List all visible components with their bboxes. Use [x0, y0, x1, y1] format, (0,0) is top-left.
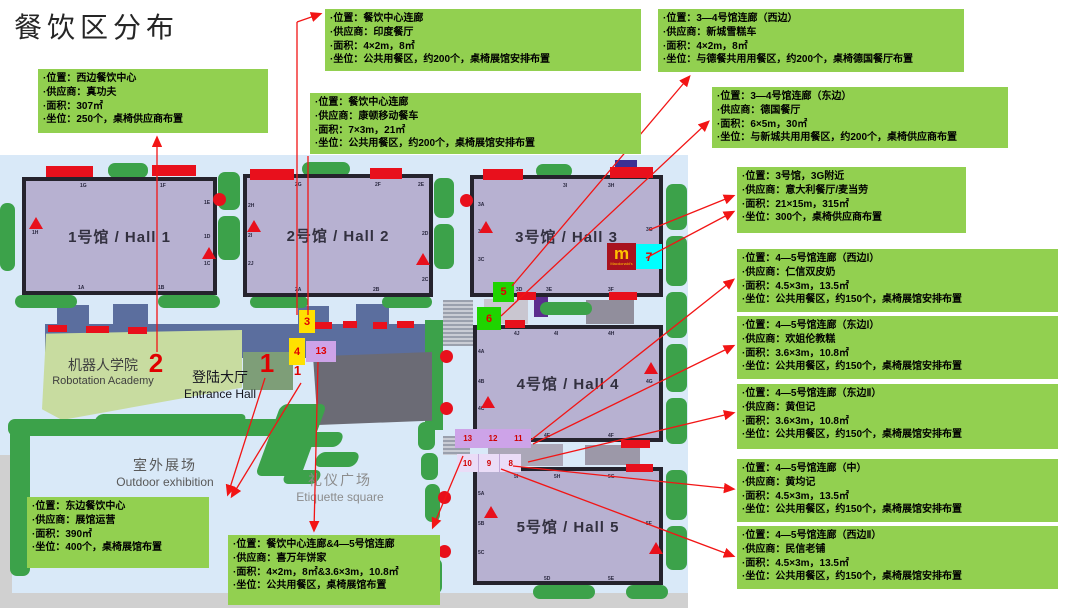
food-marker-strip: 1098: [457, 454, 521, 472]
hall-5-label: 5号馆 / Hall 5: [517, 516, 620, 537]
info-box-dining-and-hall45-corridor: ·位置：餐饮中心连廊&4—5号馆连廊·供应商：喜万年饼家·面积：4×2m，8㎡&…: [228, 535, 440, 605]
gate-label: 5A: [478, 491, 490, 498]
gate-label: 1G: [80, 183, 92, 190]
info-line: ·面积：4×2m，8㎡: [330, 40, 635, 54]
info-box-hall45-corridor-west1: ·位置：4—5号馆连廊（西边Ⅰ）·供应商：仁信双皮奶·面积：4.5×3m，13.…: [737, 249, 1058, 312]
gate-label: 5C: [478, 550, 490, 557]
tree: [540, 302, 592, 315]
info-line: ·位置：3—4号馆连廊（东边）: [717, 90, 1002, 104]
info-box-hall45-corridor-east2: ·位置：4—5号馆连廊（东边Ⅱ）·供应商：黄但记·面积：3.6×3m，10.8㎡…: [737, 384, 1058, 449]
tree: [666, 236, 687, 286]
hall-1-label: 1号馆 / Hall 1: [68, 226, 171, 247]
entrance-bar: [370, 168, 402, 179]
map-shape: [688, 155, 737, 608]
entrance-hall-label-en: Entrance Hall: [160, 387, 280, 401]
info-line: ·位置：餐饮中心连廊&4—5号馆连廊: [233, 538, 434, 552]
tree: [15, 295, 77, 308]
tree: [93, 414, 247, 426]
tree: [313, 452, 360, 467]
info-line: ·位置：东边餐饮中心: [32, 500, 203, 514]
info-box-hall3-3g: ·位置：3号馆，3G附近·供应商：意大利餐厅/麦当劳·面积：21×15m，315…: [737, 167, 966, 233]
map-shape: [585, 445, 640, 465]
info-line: ·坐位：公共用餐区，约150个，桌椅展馆安排布置: [742, 503, 1052, 517]
info-box-dining-corridor-kangdun: ·位置：餐饮中心连廊·供应商：康顿移动餐车·面积：7×3m，21㎡·坐位：公共用…: [310, 93, 641, 154]
gate-label: 5F: [646, 521, 658, 528]
info-line: ·坐位：公共用餐区，约150个，桌椅展馆安排布置: [742, 293, 1052, 307]
gate-label: 2F: [375, 182, 387, 189]
red-dot: [438, 491, 451, 504]
gate-label: 3C: [478, 257, 490, 264]
hall-2: 2号馆 / Hall 2: [243, 174, 433, 297]
info-line: ·供应商：新城雪糕车: [663, 26, 958, 40]
info-line: ·供应商：意大利餐厅/麦当劳: [742, 184, 960, 198]
entrance-bar: [48, 325, 67, 332]
info-box-hall34-corridor-east: ·位置：3—4号馆连廊（东边）·供应商：德国餐厅·面积：6×5m，30㎡·坐位：…: [712, 87, 1008, 148]
info-line: ·面积：307㎡: [43, 100, 262, 114]
food-marker-11: 11: [506, 429, 531, 448]
info-line: ·面积：6×5m，30㎡: [717, 118, 1002, 132]
info-box-hall45-corridor-mid: ·位置：4—5号馆连廊（中）·供应商：黄均记·面积：4.5×3m，13.5㎡·坐…: [737, 459, 1058, 522]
fire-point-icon: [479, 221, 493, 233]
food-marker-9: 9: [478, 454, 500, 472]
gate-label: 2A: [295, 287, 307, 294]
hall-5: 5号馆 / Hall 5: [473, 467, 663, 585]
info-line: ·供应商：民信老铺: [742, 543, 1052, 557]
gate-label: 5E: [608, 576, 620, 583]
gate-label: 4I: [554, 331, 566, 338]
info-line: ·面积：21×15m，315㎡: [742, 198, 960, 212]
entrance-bar: [250, 169, 294, 180]
tree: [382, 296, 432, 308]
info-box-hall45-corridor-west2: ·位置：4—5号馆连廊（西边Ⅱ）·供应商：民信老铺·面积：4.5×3m，13.5…: [737, 526, 1058, 589]
info-line: ·坐位：与新城共用用餐区，约200个，桌椅供应商布置: [717, 131, 1002, 145]
gate-label: 3G: [646, 227, 658, 234]
map-shape: [113, 304, 148, 327]
info-box-hall45-corridor-east1: ·位置：4—5号馆连廊（东边Ⅰ）·供应商：欢姐伦教糕·面积：3.6×3m，10.…: [737, 316, 1058, 379]
info-line: ·位置：西边餐饮中心: [43, 72, 262, 86]
food-marker-3: 3: [299, 310, 315, 333]
page-title: 餐饮区分布: [14, 6, 179, 46]
info-line: ·位置：4—5号馆连廊（东边Ⅱ）: [742, 387, 1052, 401]
info-line: ·面积：4.5×3m，13.5㎡: [742, 280, 1052, 294]
tree: [533, 585, 595, 599]
red-dot: [440, 350, 453, 363]
fire-point-icon: [29, 217, 43, 229]
info-line: ·坐位：公共用餐区，约200个，桌椅展馆安排布置: [330, 53, 635, 67]
fire-point-icon: [484, 506, 498, 518]
entrance-bar: [517, 292, 536, 300]
tree: [666, 526, 687, 570]
info-line: ·坐位：公共用餐区，约200个，桌椅展馆安排布置: [315, 137, 635, 151]
info-line: ·位置：4—5号馆连廊（西边Ⅱ）: [742, 529, 1052, 543]
gate-label: 5H: [554, 474, 566, 481]
fire-point-icon: [247, 220, 261, 232]
etiquette-square-label-en: Etiquette square: [255, 490, 425, 504]
info-line: ·面积：3.6×3m，10.8㎡: [742, 347, 1052, 361]
entrance-bar: [610, 167, 653, 178]
info-line: ·供应商：展馆运营: [32, 514, 203, 528]
gate-label: 4J: [514, 331, 526, 338]
entrance-bar: [128, 327, 147, 334]
entrance-hall-label: 登陆大厅 Entrance Hall: [160, 367, 280, 401]
entrance-bar: [505, 320, 525, 328]
gate-label: 3H: [608, 183, 620, 190]
info-line: ·供应商：仁信双皮奶: [742, 266, 1052, 280]
info-line: ·面积：7×3m，21㎡: [315, 124, 635, 138]
mcdonalds-logo: mMacdonald's: [607, 243, 636, 270]
ramp: [443, 300, 473, 346]
tree: [666, 470, 687, 520]
entrance-bar: [483, 169, 523, 180]
info-line: ·位置：餐饮中心连廊: [330, 12, 635, 26]
info-line: ·供应商：真功夫: [43, 86, 262, 100]
gate-label: 5G: [608, 474, 620, 481]
gate-label: 3E: [546, 287, 558, 294]
info-box-dining-corridor-india: ·位置：餐饮中心连廊·供应商：印度餐厅·面积：4×2m，8㎡·坐位：公共用餐区，…: [325, 9, 641, 71]
hall-2-label: 2号馆 / Hall 2: [287, 225, 390, 246]
info-line: ·面积：4.5×3m，13.5㎡: [742, 557, 1052, 571]
gate-label: 2E: [418, 182, 430, 189]
info-line: ·供应商：喜万年饼家: [233, 552, 434, 566]
info-box-east-dining-center: ·位置：东边餐饮中心·供应商：展馆运营·面积：390㎡·坐位：400个，桌椅展馆…: [27, 497, 209, 568]
info-line: ·位置：4—5号馆连廊（东边Ⅰ）: [742, 319, 1052, 333]
gate-label: 5D: [544, 576, 556, 583]
gate-label: 4G: [646, 379, 658, 386]
food-marker-strip: 131211: [455, 429, 531, 448]
info-line: ·供应商：德国餐厅: [717, 104, 1002, 118]
red-dot: [460, 194, 473, 207]
red-dot: [213, 193, 226, 206]
map-shape: [586, 300, 634, 324]
tree: [158, 295, 220, 308]
info-line: ·坐位：400个，桌椅展馆布置: [32, 541, 203, 555]
entrance-bar: [621, 440, 650, 448]
entrance-bar: [46, 166, 93, 177]
food-marker-6: 6: [477, 307, 501, 330]
info-line: ·坐位：300个，桌椅供应商布置: [742, 211, 960, 225]
info-line: ·供应商：印度餐厅: [330, 26, 635, 40]
entrance-bar: [397, 321, 414, 328]
gate-label: 2I: [248, 233, 260, 240]
gate-label: 2G: [295, 182, 307, 189]
gate-label: 1C: [204, 261, 216, 268]
tree: [108, 163, 148, 178]
info-line: ·面积：4.5×3m，13.5㎡: [742, 490, 1052, 504]
tree: [250, 296, 308, 308]
tree: [666, 398, 687, 444]
tree: [434, 178, 454, 218]
entrance-bar: [152, 165, 196, 176]
tree: [434, 224, 454, 269]
info-line: ·位置：3—4号馆连廊（西边）: [663, 12, 958, 26]
hall-4-label: 4号馆 / Hall 4: [517, 373, 620, 394]
gate-label: 1D: [204, 234, 216, 241]
hall-3-label: 3号馆 / Hall 3: [515, 226, 618, 247]
gate-label: 1A: [78, 285, 90, 292]
info-line: ·坐位：公共用餐区，约150个，桌椅展馆安排布置: [742, 428, 1052, 442]
info-line: ·位置：餐饮中心连廊: [315, 96, 635, 110]
entrance-bar: [343, 321, 357, 328]
fire-point-icon: [481, 396, 495, 408]
gate-label: 2J: [248, 261, 260, 268]
info-line: ·位置：4—5号馆连廊（中）: [742, 462, 1052, 476]
mcdonalds-wordmark: Macdonald's: [610, 262, 632, 266]
etiquette-square-label-zh: 礼仪广场: [255, 470, 425, 490]
info-line: ·位置：4—5号馆连廊（西边Ⅰ）: [742, 252, 1052, 266]
tree: [626, 585, 668, 599]
hall-4: 4号馆 / Hall 4: [473, 325, 663, 442]
info-line: ·坐位：公共用餐区，约150个，桌椅展馆安排布置: [742, 360, 1052, 374]
entrance-hall-area: [313, 352, 432, 425]
info-line: ·供应商：黄但记: [742, 401, 1052, 415]
gate-label: 1B: [158, 285, 170, 292]
food-marker-13: 13: [455, 429, 480, 448]
outdoor-exhibition-label-en: Outdoor exhibition: [75, 475, 255, 489]
slide: 餐饮区分布 机器人学院 Robotation Academy 登陆大厅 Entr…: [0, 0, 1080, 608]
tree: [666, 344, 687, 392]
food-marker-4: 4: [289, 338, 305, 365]
entrance-bar: [626, 464, 653, 472]
info-line: ·面积：4×2m，8㎡: [663, 40, 958, 54]
etiquette-square-label: 礼仪广场 Etiquette square: [255, 470, 425, 504]
gate-label: 2B: [373, 287, 385, 294]
entrance-bar: [609, 292, 637, 300]
gate-label: 1F: [160, 183, 172, 190]
gate-label: 4H: [608, 331, 620, 338]
food-marker-10: 10: [457, 454, 478, 472]
fire-point-icon: [649, 542, 663, 554]
info-line: ·面积：390㎡: [32, 528, 203, 542]
info-line: ·位置：3号馆，3G附近: [742, 170, 960, 184]
entrance-bar: [373, 322, 387, 329]
tree: [0, 203, 15, 271]
entrance-hall-label-zh: 登陆大厅: [160, 367, 280, 387]
mcdonalds-arches-icon: m: [614, 245, 629, 262]
food-marker-8: 8: [499, 454, 521, 472]
food-marker-5: 5: [493, 282, 514, 302]
info-box-hall34-corridor-west: ·位置：3—4号馆连廊（西边）·供应商：新城雪糕车·面积：4×2m，8㎡·坐位：…: [658, 9, 964, 72]
gate-label: 4A: [478, 349, 490, 356]
gate-label: 3A: [478, 202, 490, 209]
gate-label: 2H: [248, 203, 260, 210]
entrance-bar: [315, 322, 332, 329]
tree: [666, 184, 687, 230]
fire-point-icon: [644, 362, 658, 374]
info-line: ·坐位：公共用餐区，约150个，桌椅展馆安排布置: [742, 570, 1052, 584]
gate-label: 4B: [478, 379, 490, 386]
info-line: ·坐位：250个，桌椅供应商布置: [43, 113, 262, 127]
tree: [418, 422, 435, 450]
outdoor-exhibition-label-zh: 室外展场: [75, 455, 255, 475]
food-marker-13: 13: [306, 341, 336, 362]
tree: [218, 216, 240, 260]
food-marker-7: 7: [636, 244, 662, 269]
info-box-west-dining-center: ·位置：西边餐饮中心·供应商：真功夫·面积：307㎡·坐位：250个，桌椅供应商…: [38, 69, 268, 133]
food-marker-1: 1: [291, 362, 304, 378]
fire-point-icon: [416, 253, 430, 265]
gate-label: 2C: [422, 277, 434, 284]
outdoor-exhibition-label: 室外展场 Outdoor exhibition: [75, 455, 255, 489]
red-dot: [440, 402, 453, 415]
info-line: ·供应商：黄均记: [742, 476, 1052, 490]
food-marker-12: 12: [480, 429, 505, 448]
gate-label: 4E: [544, 433, 556, 440]
entrance-bar: [86, 326, 109, 333]
tree: [666, 292, 687, 338]
fire-point-icon: [202, 247, 216, 259]
hall-3: 3号馆 / Hall 3: [470, 175, 663, 297]
gate-label: 4F: [608, 433, 620, 440]
info-line: ·面积：3.6×3m，10.8㎡: [742, 415, 1052, 429]
tree: [425, 484, 440, 522]
info-line: ·坐位：与德餐共用用餐区，约200个，桌椅德国餐厅布置: [663, 53, 958, 67]
gate-label: 2D: [422, 231, 434, 238]
gate-label: 3I: [563, 183, 575, 190]
info-line: ·供应商：康顿移动餐车: [315, 110, 635, 124]
gate-label: 5I: [514, 474, 526, 481]
info-line: ·坐位：公共用餐区，桌椅展馆布置: [233, 579, 434, 593]
info-line: ·面积：4×2m，8㎡&3.6×3m，10.8㎡: [233, 566, 434, 580]
hall-1: 1号馆 / Hall 1: [22, 177, 217, 295]
map-shape: [57, 305, 89, 327]
info-line: ·供应商：欢姐伦教糕: [742, 333, 1052, 347]
gate-label: 5B: [478, 521, 490, 528]
gate-label: 1H: [32, 230, 44, 237]
